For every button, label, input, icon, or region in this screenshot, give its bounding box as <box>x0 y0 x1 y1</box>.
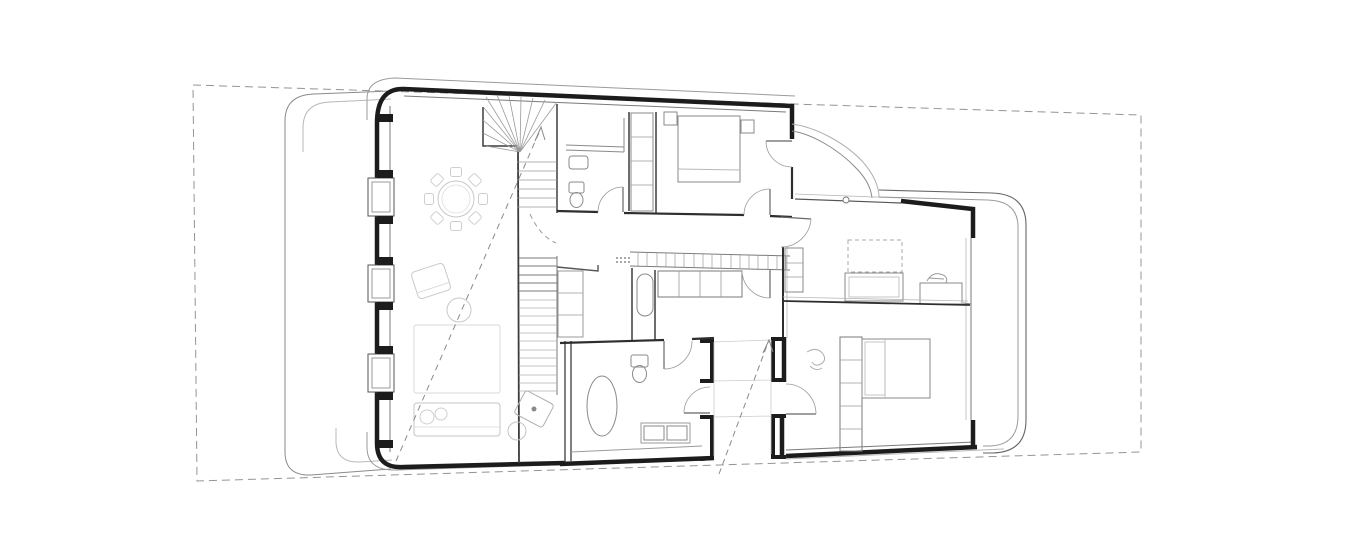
wc-toilet-tank <box>569 182 584 193</box>
lightwell-wall-sw <box>700 417 712 459</box>
door-bedroom1-swing <box>744 189 770 215</box>
hall-wardrobe-top <box>631 113 653 211</box>
lightwell-wall-nw <box>700 341 712 381</box>
wall-jamb-bottom-corner <box>377 440 393 448</box>
nook-bench <box>637 274 653 316</box>
door-bedroom2-swing <box>786 384 816 414</box>
stair-winder-treads <box>483 95 557 152</box>
bathroom-south-wall-inner <box>571 446 702 452</box>
vanity-sink-right <box>667 426 687 440</box>
bed2 <box>862 339 930 398</box>
bedroom2-doodle <box>807 349 825 369</box>
dining-chair-4 <box>430 211 444 225</box>
vanity-sink-left <box>644 426 664 440</box>
wing-corner-wall <box>901 201 973 238</box>
stair-side-closet-dividers <box>558 293 583 315</box>
door-studio-swing <box>781 219 811 247</box>
door-terrace-swing <box>766 141 792 167</box>
window-2-jamb-bottom <box>377 302 393 310</box>
stair-lower-treads-dark <box>519 258 557 291</box>
dining-chair-3 <box>451 222 462 231</box>
studio-south-wall <box>783 301 970 305</box>
window-1-jamb-top <box>377 170 393 178</box>
stair-upper-treads <box>517 162 557 207</box>
bed1 <box>678 116 740 182</box>
landing-shelf <box>557 265 598 271</box>
dining-chair-5 <box>425 194 434 205</box>
pouf-ghost <box>508 422 526 440</box>
corridor-north-wall <box>557 211 792 217</box>
bathroom-west-wall <box>565 341 571 462</box>
wc-sink <box>569 156 588 169</box>
door-patio-swing <box>684 387 710 413</box>
hall-wardrobe-top-dividers <box>631 137 653 185</box>
sofa-ghost <box>414 403 500 436</box>
glazing-pivot-dot <box>843 197 849 203</box>
hall-closet-dividers <box>679 271 721 297</box>
window-3-jamb-bottom <box>377 392 393 400</box>
bath-toilet-bowl <box>633 366 647 383</box>
dining-chair-1 <box>479 194 488 205</box>
bed2-pillow <box>865 342 885 395</box>
door-studio-leaf <box>781 217 811 219</box>
door-hall-swing <box>742 270 770 298</box>
bedroom2-wardrobe <box>840 337 862 451</box>
wc-toilet-bowl <box>570 193 583 208</box>
armchair-ghost-2-dot <box>532 407 537 412</box>
armchair-ghost-1 <box>411 262 452 299</box>
lightwell-section-dash <box>719 340 769 474</box>
nightstand-right <box>741 120 754 133</box>
dining-table <box>438 181 474 217</box>
side-table-ghost <box>447 298 471 322</box>
rug-ghost <box>414 325 500 393</box>
window-3-jamb-top <box>377 346 393 354</box>
right-glazing-sill-notch <box>963 303 971 304</box>
bathroom-south-exterior-wall <box>560 458 714 464</box>
terrace-railing-outer <box>879 190 1026 453</box>
studio-dresser-inner <box>849 277 899 297</box>
wc-counter <box>566 118 624 152</box>
stair-side-closet <box>558 271 583 337</box>
stair-lower-treads-light <box>519 300 557 391</box>
sofa-pillow-1 <box>420 410 434 424</box>
parapet-curve-inner <box>792 131 872 198</box>
dining-chair-6 <box>430 173 444 187</box>
door-wc-swing <box>598 187 623 212</box>
sofa-pillow-2 <box>435 408 447 420</box>
dining-chair-7 <box>451 168 462 177</box>
floor-plan <box>0 0 1352 553</box>
window-1-jamb-bottom <box>377 216 393 224</box>
door-bathroom-swing <box>664 341 692 369</box>
nightstand-left <box>664 112 677 125</box>
parapet-curve-outer <box>792 124 879 197</box>
floor-plan-svg <box>0 0 1352 553</box>
window-2-jamb-top <box>377 257 393 265</box>
dining-chair-8 <box>468 173 482 187</box>
void-railing-end-hatch <box>616 258 630 262</box>
skylight-dashed-outline <box>848 240 902 272</box>
bed1-blanket-line <box>678 169 740 170</box>
stair-direction-dash-curl <box>530 214 556 243</box>
bedroom2-wardrobe-dividers <box>840 360 862 429</box>
wall-jamb-top-corner <box>377 114 393 122</box>
bathtub <box>587 376 617 436</box>
bathroom-north-wall <box>560 338 714 343</box>
void-railing-lines <box>630 252 790 270</box>
studio-south-wall-inner <box>783 297 968 301</box>
dining-chair-2 <box>468 211 482 225</box>
terrace-railing-inner <box>879 197 1018 446</box>
studio-desk-chair-sketch <box>927 274 947 283</box>
site-boundary <box>193 85 1141 481</box>
dining-table-inner <box>442 185 470 213</box>
